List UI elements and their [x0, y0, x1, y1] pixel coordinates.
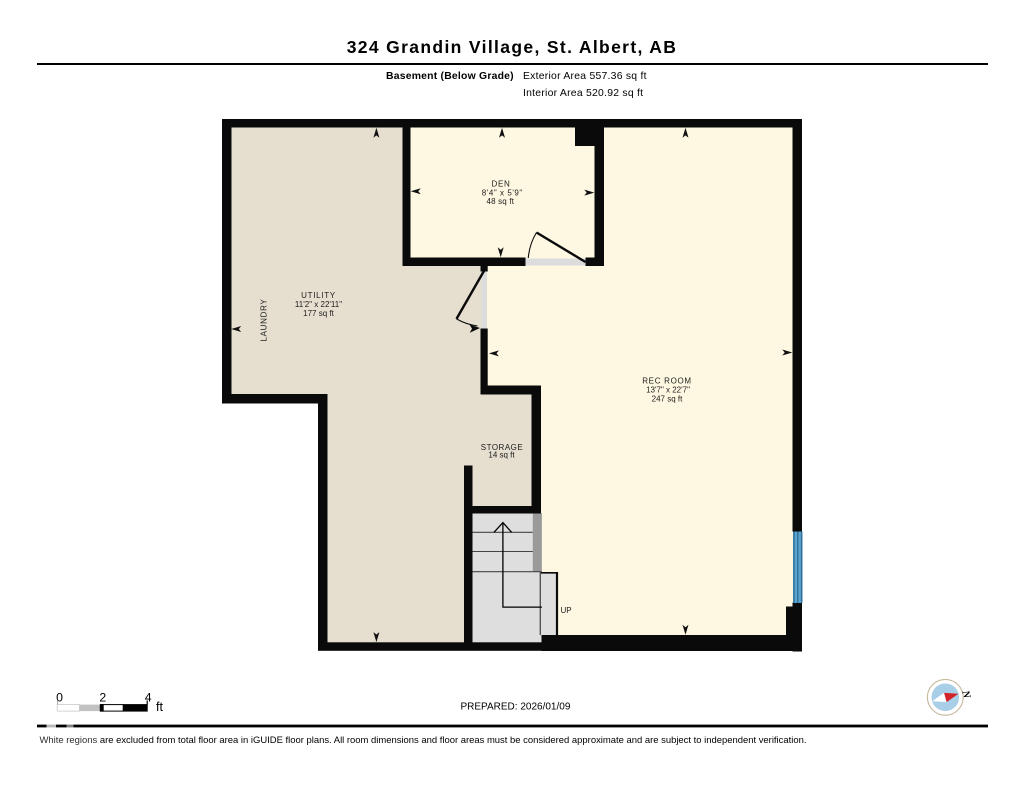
svg-text:2: 2: [99, 690, 106, 704]
svg-text:PREPARED: 2026/01/09: PREPARED: 2026/01/09: [461, 701, 571, 712]
svg-text:UP: UP: [561, 606, 572, 615]
svg-text:48 sq ft: 48 sq ft: [486, 197, 514, 206]
svg-text:247 sq ft: 247 sq ft: [652, 395, 683, 404]
svg-text:White regions are excluded fro: White regions are excluded from total fl…: [40, 735, 807, 746]
svg-text:UTILITY: UTILITY: [301, 291, 336, 300]
svg-text:ft: ft: [156, 700, 163, 714]
svg-text:REC ROOM: REC ROOM: [642, 377, 692, 386]
svg-text:DEN: DEN: [492, 180, 511, 189]
svg-text:4: 4: [145, 690, 152, 704]
svg-text:177 sq ft: 177 sq ft: [303, 309, 334, 318]
svg-text:13'7" x 22'7": 13'7" x 22'7": [646, 386, 690, 395]
svg-text:11'2" x 22'11": 11'2" x 22'11": [295, 300, 342, 309]
svg-text:14 sq ft: 14 sq ft: [488, 450, 515, 459]
svg-text:LAUNDRY: LAUNDRY: [260, 299, 269, 342]
